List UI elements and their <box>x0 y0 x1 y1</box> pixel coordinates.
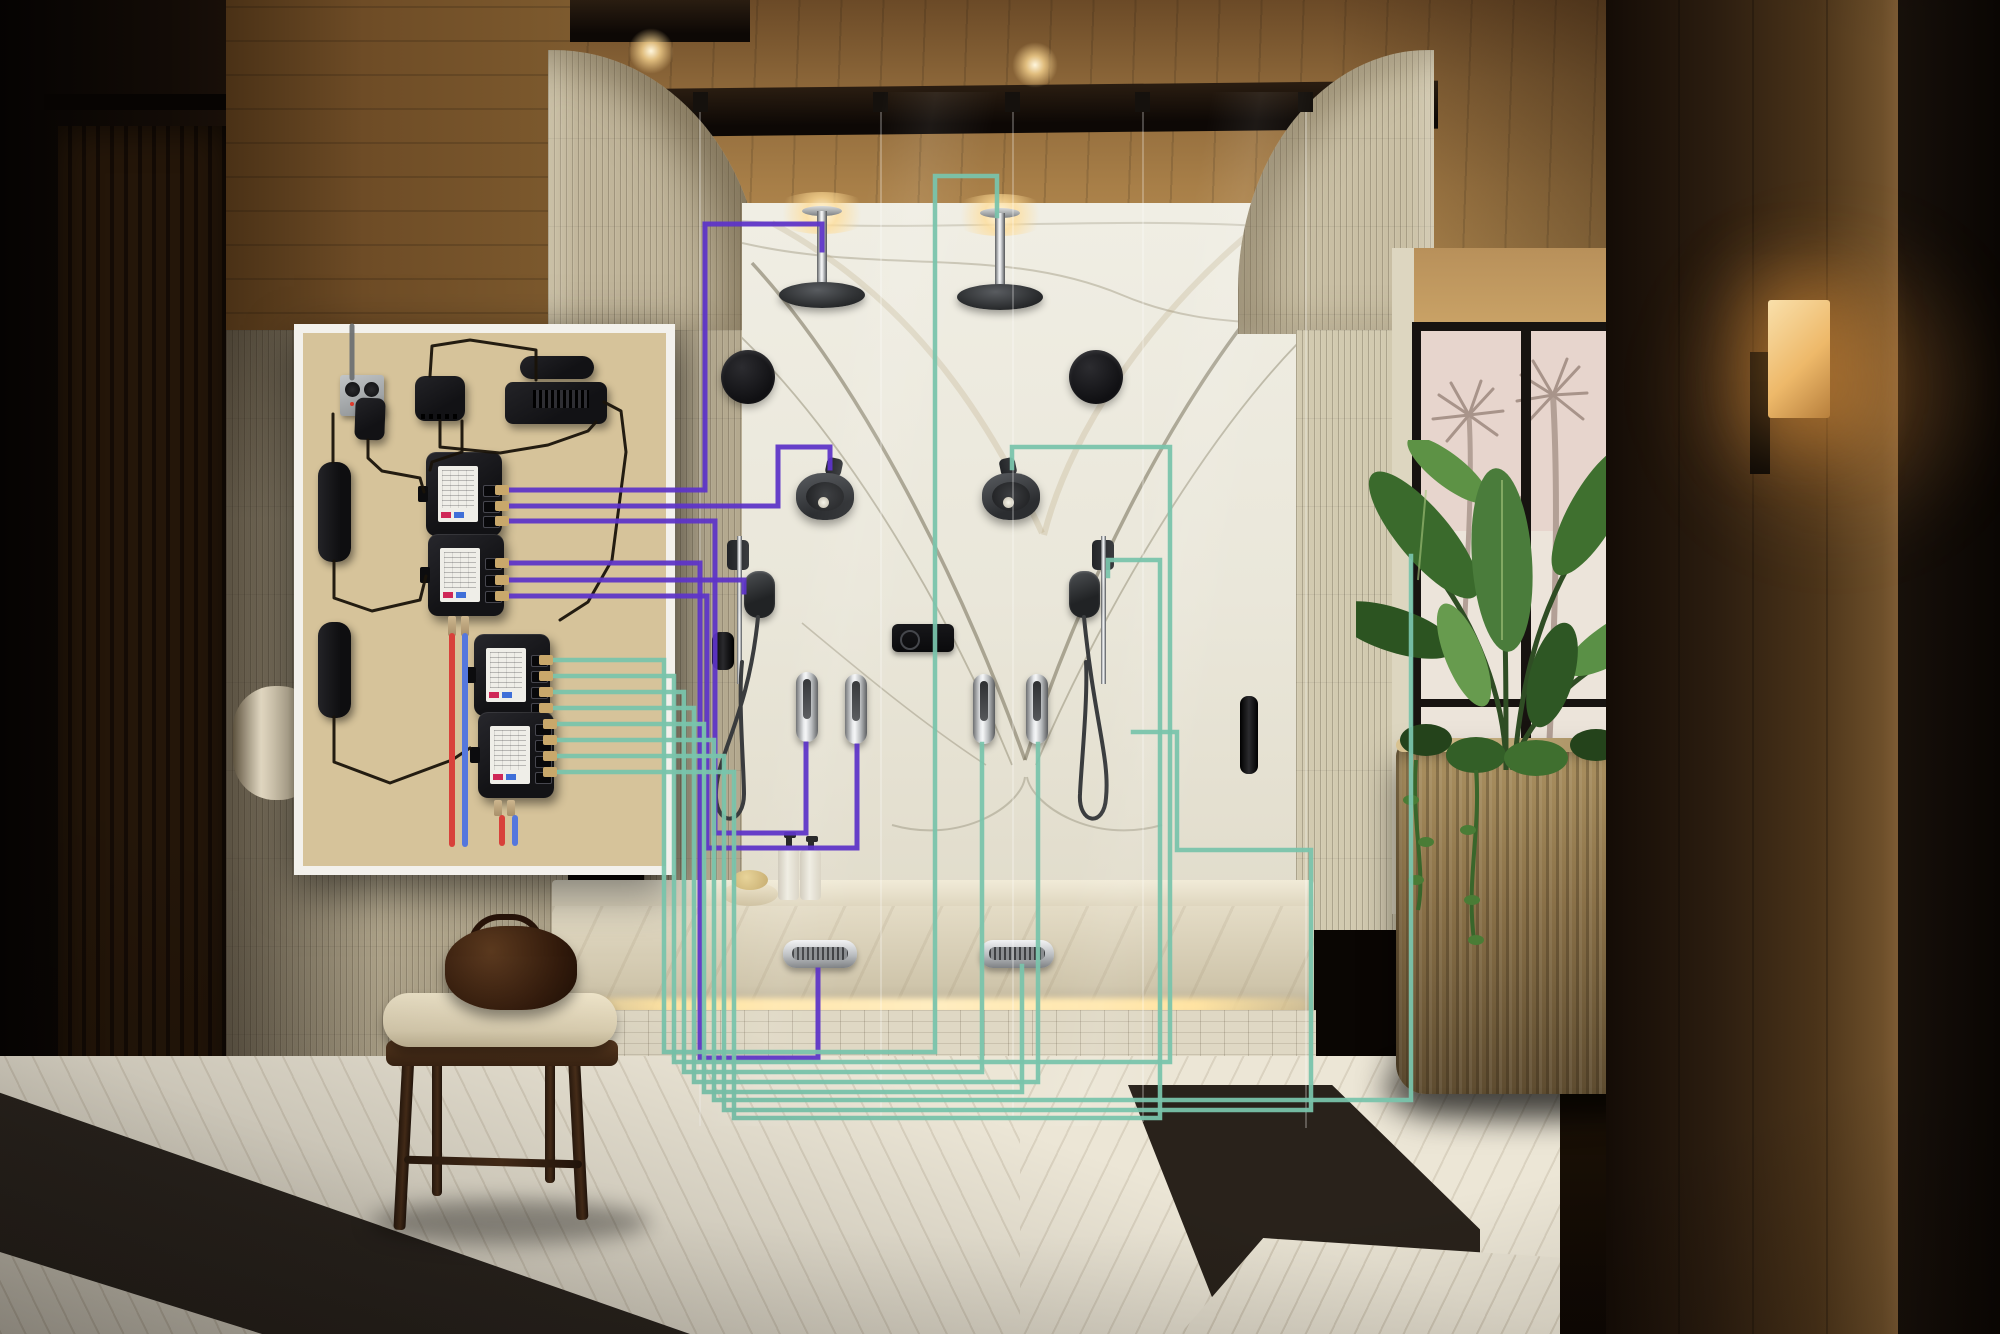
wire-right-steam-vent <box>553 724 1022 1092</box>
wire-right-rainhead <box>549 176 997 1052</box>
device-down-cable <box>560 402 626 620</box>
wire-connector <box>495 558 509 568</box>
sconce-bracket <box>1750 352 1770 474</box>
wire-left-showerhead <box>505 447 830 506</box>
adapter-cable <box>368 440 424 492</box>
wood-column-right <box>1606 0 1906 1334</box>
device-top-arc <box>430 340 536 380</box>
wire-connector <box>495 575 509 585</box>
dark-wall-far-right <box>1898 0 2000 1334</box>
wire-connector <box>539 687 553 697</box>
wire-connector <box>495 516 509 526</box>
wire-left-steam-vent <box>505 563 818 1058</box>
sconce-glow <box>1668 222 1998 552</box>
wire-connector <box>495 485 509 495</box>
wire-connector <box>539 703 553 713</box>
hub-to-module1 <box>430 421 462 470</box>
wire-connector <box>539 671 553 681</box>
wire-connector <box>539 655 553 665</box>
wire-connector <box>495 591 509 601</box>
wire-left-handshower <box>505 580 744 592</box>
wire-connector <box>495 501 509 511</box>
brick1-to-module2 <box>334 561 426 611</box>
wall-sconce <box>1768 300 1830 418</box>
wire-connector <box>543 735 557 745</box>
wire-connector <box>543 719 557 729</box>
wire-right-spray-handle-1 <box>549 692 982 1072</box>
wire-left-rainhead <box>505 224 822 490</box>
wire-connector <box>543 751 557 761</box>
bathroom-scene <box>0 0 2000 1334</box>
wire-right-spray-handle-2 <box>549 708 1038 1082</box>
wire-connector <box>543 767 557 777</box>
